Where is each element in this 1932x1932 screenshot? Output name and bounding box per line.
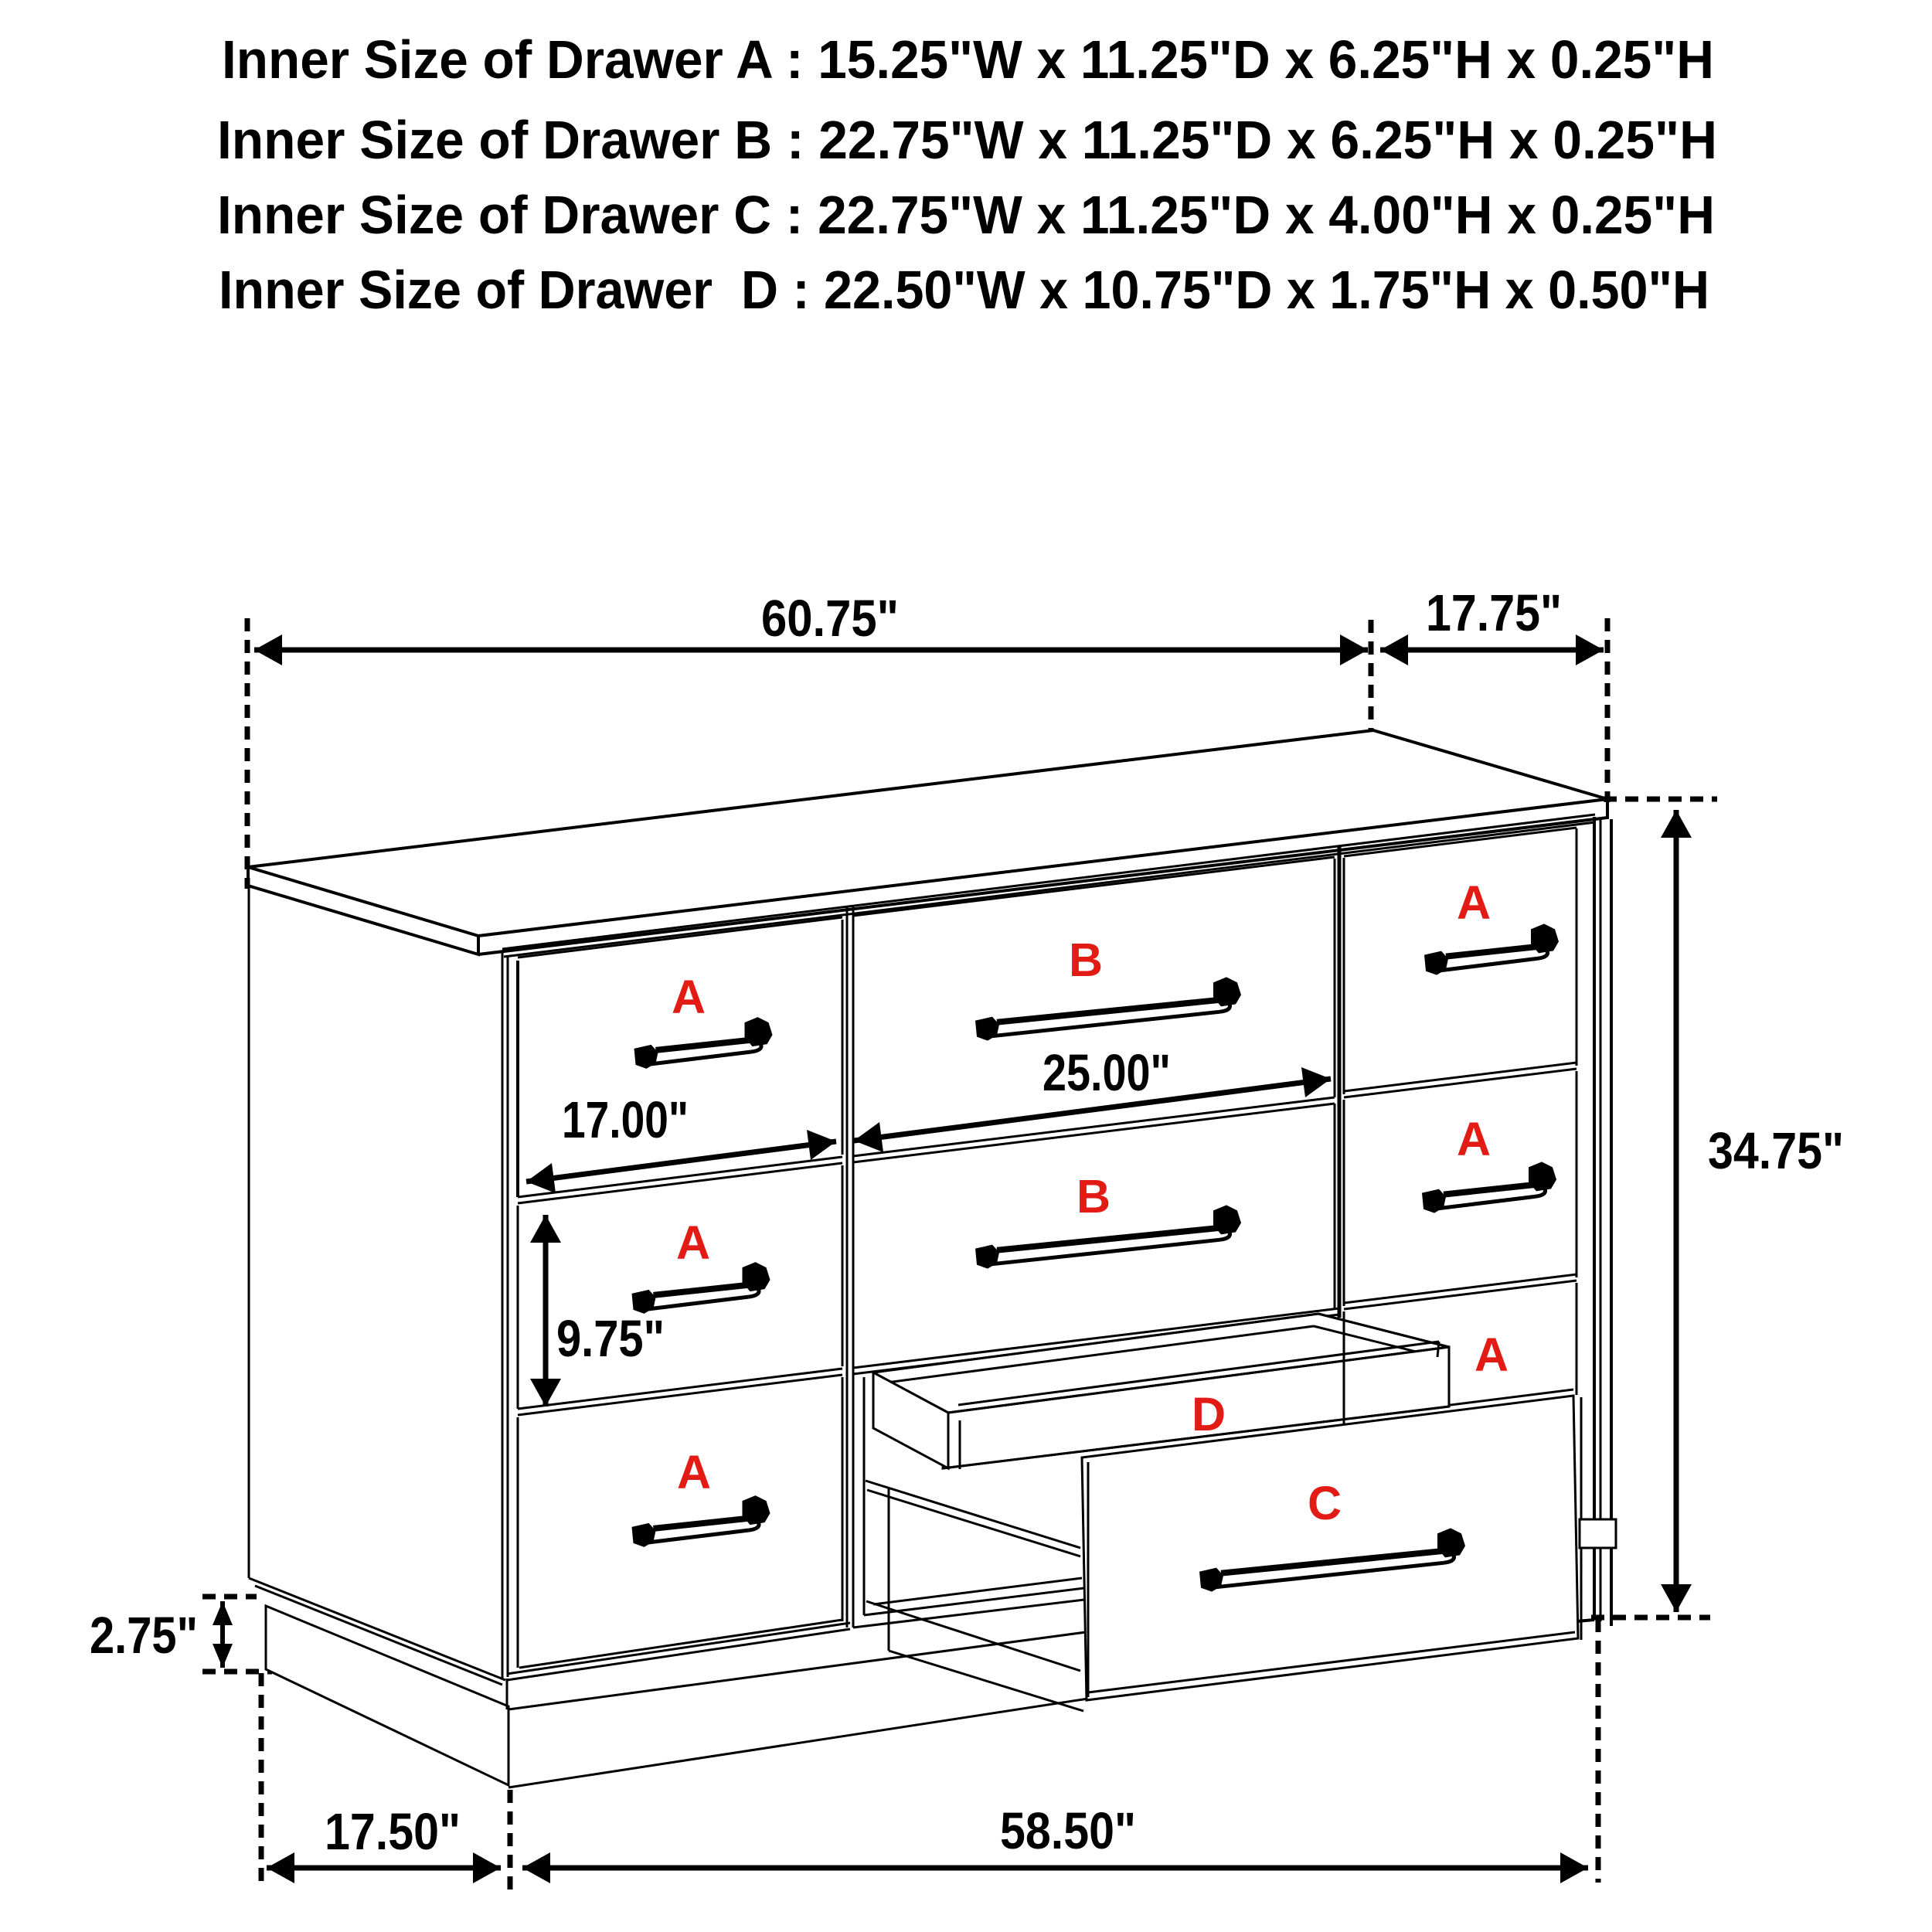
svg-text:17.50": 17.50" (325, 1803, 461, 1861)
svg-text:60.75": 60.75" (761, 590, 899, 648)
svg-text:A: A (677, 1446, 711, 1498)
svg-text:B: B (1069, 934, 1103, 986)
svg-text:Inner Size of Drawer B : 22.75: Inner Size of Drawer B : 22.75"W x 11.25… (217, 110, 1717, 170)
svg-text:34.75": 34.75" (1708, 1122, 1844, 1180)
svg-text:17.75": 17.75" (1426, 584, 1562, 642)
svg-text:58.50": 58.50" (1000, 1802, 1136, 1860)
svg-text:C: C (1308, 1477, 1342, 1529)
svg-text:A: A (1457, 1113, 1491, 1165)
svg-text:9.75": 9.75" (556, 1310, 665, 1368)
svg-text:17.00": 17.00" (562, 1091, 689, 1149)
svg-text:D: D (1192, 1388, 1226, 1440)
svg-text:Inner Size of Drawer A : 15.25: Inner Size of Drawer A : 15.25"W x 11.25… (222, 29, 1714, 90)
svg-text:A: A (672, 971, 706, 1023)
svg-text:A: A (1457, 876, 1491, 929)
svg-text:25.00": 25.00" (1043, 1044, 1171, 1102)
svg-text:A: A (1475, 1328, 1509, 1381)
svg-text:2.75": 2.75" (90, 1607, 198, 1665)
svg-text:Inner Size of Drawer D : 22.5: Inner Size of Drawer D : 22.50"W x 10.75… (219, 260, 1709, 320)
svg-text:Inner Size of Drawer C : 22.75: Inner Size of Drawer C : 22.75"W x 11.25… (217, 185, 1715, 245)
svg-text:B: B (1077, 1170, 1111, 1223)
svg-text:A: A (676, 1216, 710, 1269)
